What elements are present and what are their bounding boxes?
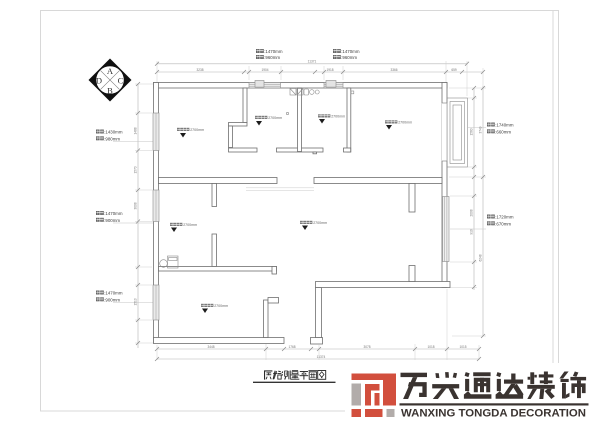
svg-text:1560: 1560 (470, 128, 474, 135)
svg-text:D: D (96, 76, 102, 86)
svg-text::670mm: :670mm (495, 221, 511, 226)
svg-text:3078: 3078 (363, 345, 370, 349)
svg-text:3366: 3366 (390, 68, 397, 72)
svg-text::900mm: :900mm (104, 218, 120, 223)
svg-text:C: C (118, 76, 124, 86)
svg-text::1470mm: :1470mm (264, 49, 283, 54)
svg-text::1470mm: :1470mm (341, 49, 360, 54)
svg-text::1430mm: :1430mm (104, 130, 123, 135)
svg-text:3238: 3238 (196, 68, 203, 72)
svg-text::1470mm: :1470mm (104, 291, 123, 296)
svg-text::1470mm: :1470mm (104, 211, 123, 216)
svg-text::980mm: :980mm (104, 136, 120, 141)
svg-text:910: 910 (470, 229, 474, 235)
svg-text:1488: 1488 (134, 127, 138, 134)
svg-text:2008: 2008 (470, 209, 474, 216)
svg-text:6248: 6248 (479, 254, 483, 261)
svg-text:11374: 11374 (317, 355, 326, 359)
svg-text::960mm: :960mm (264, 55, 280, 60)
svg-text:1918: 1918 (326, 68, 333, 72)
svg-text:3749: 3749 (479, 126, 483, 133)
svg-text::960mm: :960mm (341, 55, 357, 60)
svg-text:1513: 1513 (134, 298, 138, 305)
svg-text:1904: 1904 (261, 68, 268, 72)
svg-text::660mm: :660mm (495, 129, 511, 134)
svg-text:11371: 11371 (308, 60, 317, 64)
svg-text:B: B (107, 86, 113, 96)
svg-text:1018: 1018 (427, 345, 434, 349)
svg-text:1768: 1768 (288, 345, 295, 349)
svg-text::1720mm: :1720mm (495, 215, 514, 220)
svg-text:3448: 3448 (207, 345, 214, 349)
svg-text::900mm: :900mm (104, 297, 120, 302)
svg-text:3008: 3008 (134, 202, 138, 209)
svg-text:1015: 1015 (459, 345, 466, 349)
svg-text:1570: 1570 (134, 166, 138, 173)
svg-text:WANXING TONGDA DECORATION: WANXING TONGDA DECORATION (401, 408, 586, 420)
svg-text:659: 659 (451, 68, 457, 72)
svg-text:A: A (107, 66, 114, 76)
svg-text::1740mm: :1740mm (495, 123, 514, 128)
